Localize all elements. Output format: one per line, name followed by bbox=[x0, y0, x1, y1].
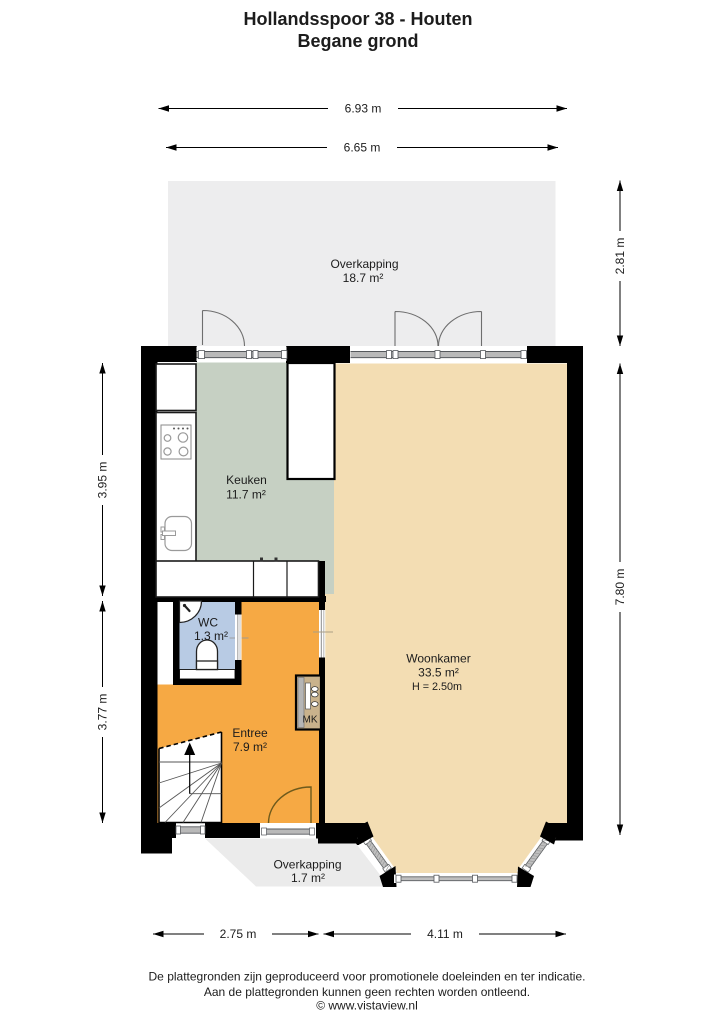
svg-text:2.75 m: 2.75 m bbox=[220, 927, 257, 941]
svg-text:Aan de plattegronden kunnen ge: Aan de plattegronden kunnen geen rechten… bbox=[204, 985, 530, 999]
svg-text:1.3 m²: 1.3 m² bbox=[194, 629, 228, 643]
svg-text:3.77 m: 3.77 m bbox=[96, 694, 110, 731]
svg-text:Woonkamer: Woonkamer bbox=[406, 652, 470, 666]
svg-text:MK: MK bbox=[303, 715, 318, 726]
svg-text:11.7 m²: 11.7 m² bbox=[226, 488, 266, 502]
svg-text:De plattegronden zijn geproduc: De plattegronden zijn geproduceerd voor … bbox=[149, 970, 586, 984]
svg-text:H = 2.50m: H = 2.50m bbox=[412, 681, 462, 693]
svg-text:18.7 m²: 18.7 m² bbox=[343, 271, 384, 285]
svg-text:3.95 m: 3.95 m bbox=[96, 462, 110, 499]
svg-text:6.93 m: 6.93 m bbox=[345, 102, 382, 116]
svg-text:Begane grond: Begane grond bbox=[297, 31, 418, 51]
svg-text:7.9 m²: 7.9 m² bbox=[233, 740, 267, 754]
svg-text:Overkapping: Overkapping bbox=[330, 257, 398, 271]
svg-text:Entree: Entree bbox=[232, 726, 268, 740]
svg-text:7.80 m: 7.80 m bbox=[613, 569, 627, 606]
svg-text:6.65 m: 6.65 m bbox=[344, 141, 381, 155]
svg-text:2.81 m: 2.81 m bbox=[613, 238, 627, 275]
svg-text:Keuken: Keuken bbox=[226, 473, 267, 487]
svg-text:33.5 m²: 33.5 m² bbox=[418, 666, 459, 680]
svg-text:Hollandsspoor 38 - Houten: Hollandsspoor 38 - Houten bbox=[243, 9, 472, 29]
svg-text:© www.vistaview.nl: © www.vistaview.nl bbox=[316, 999, 418, 1013]
svg-text:1.7 m²: 1.7 m² bbox=[291, 871, 325, 885]
svg-text:4.11 m: 4.11 m bbox=[427, 927, 463, 941]
svg-text:WC: WC bbox=[198, 616, 218, 630]
svg-text:Overkapping: Overkapping bbox=[273, 858, 341, 872]
